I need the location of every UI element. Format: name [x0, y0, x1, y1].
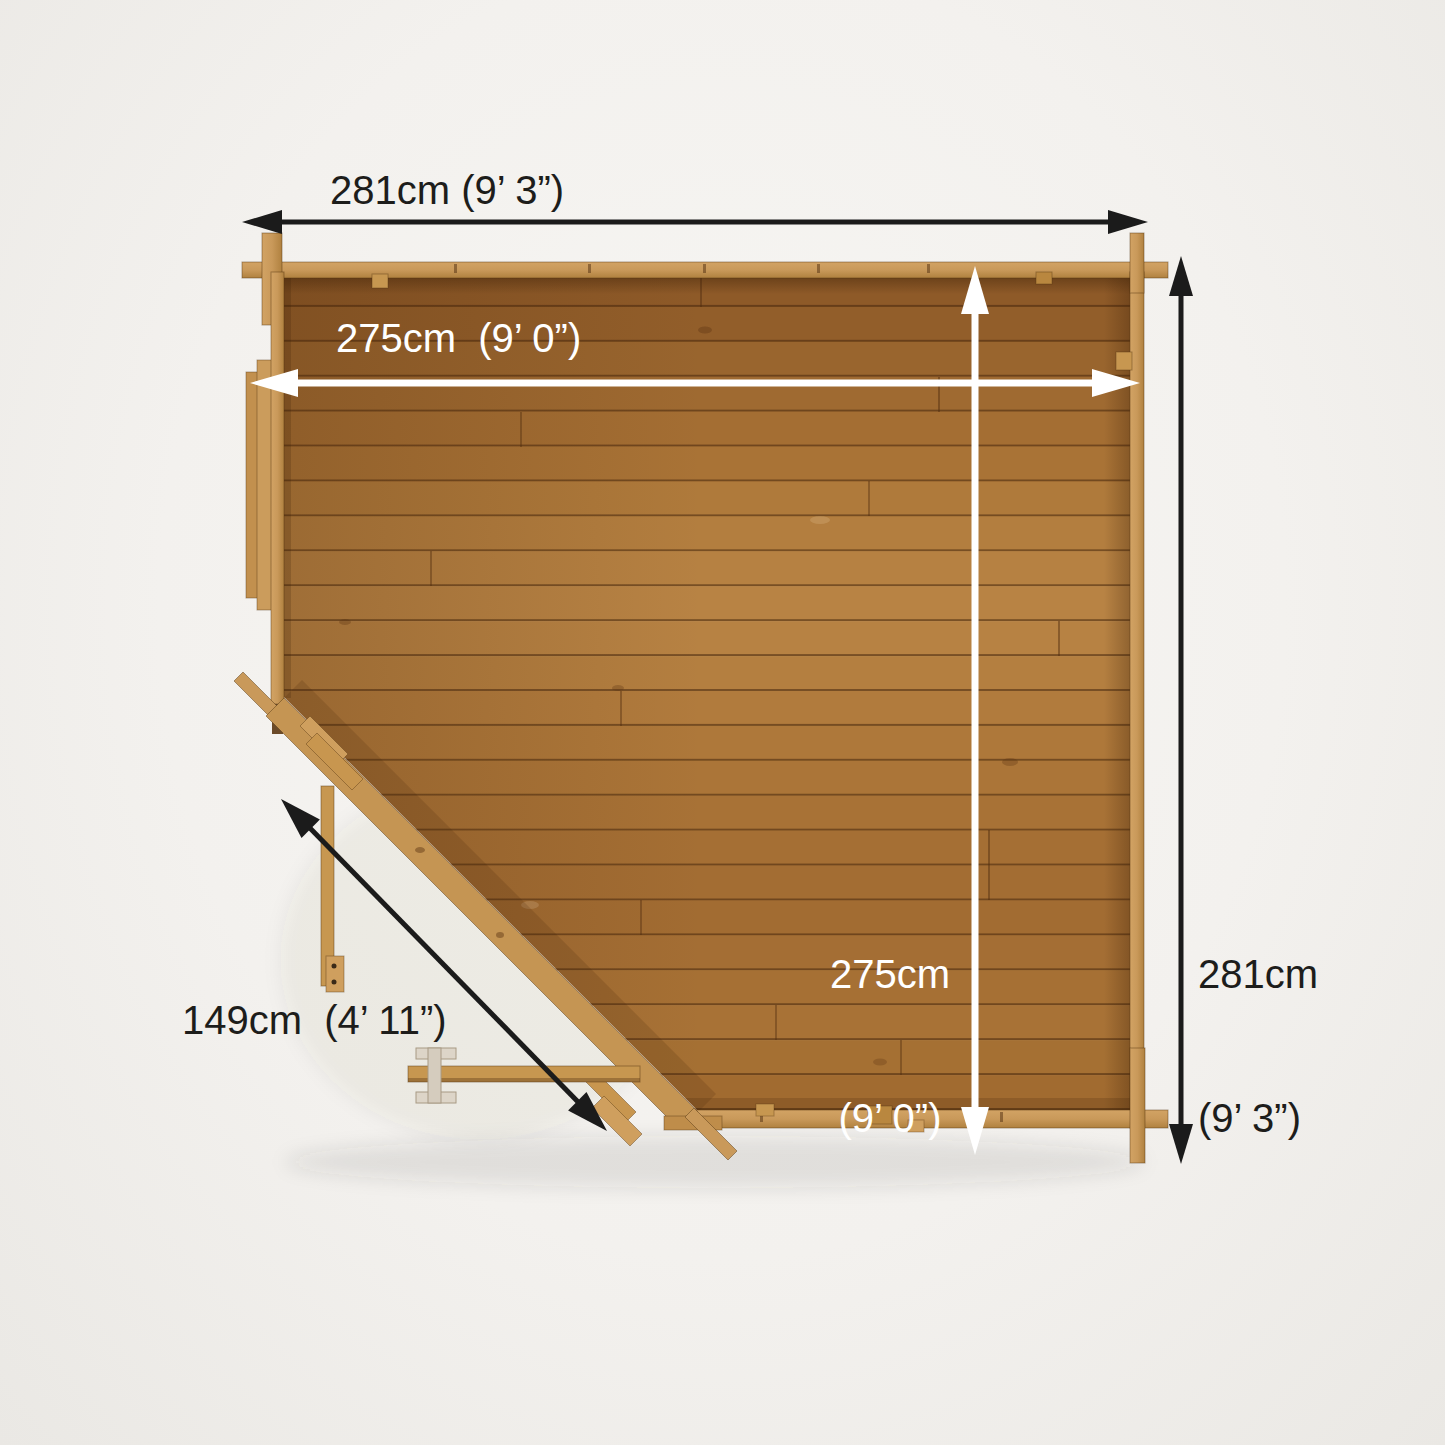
outer-depth-line1: 281cm [1198, 950, 1318, 998]
left-wall-and-window [246, 272, 284, 734]
floor-plan-canvas: 281cm (9’ 3”) 275cm (9’ 0”) 275cm (9’ 0”… [0, 0, 1445, 1445]
inner-depth-label: 275cm (9’ 0”) [780, 854, 1000, 1238]
door-width-label: 149cm (4’ 11”) [182, 996, 447, 1044]
outer-width-label: 281cm (9’ 3”) [330, 166, 564, 214]
outer-depth-label: 281cm (9’ 3”) [1198, 854, 1318, 1238]
outer-depth-arrow [1169, 256, 1193, 1164]
outer-depth-line2: (9’ 3”) [1198, 1094, 1318, 1142]
inner-depth-line2: (9’ 0”) [780, 1094, 1000, 1142]
inner-width-label: 275cm (9’ 0”) [336, 314, 581, 362]
inner-depth-line1: 275cm [780, 950, 1000, 998]
